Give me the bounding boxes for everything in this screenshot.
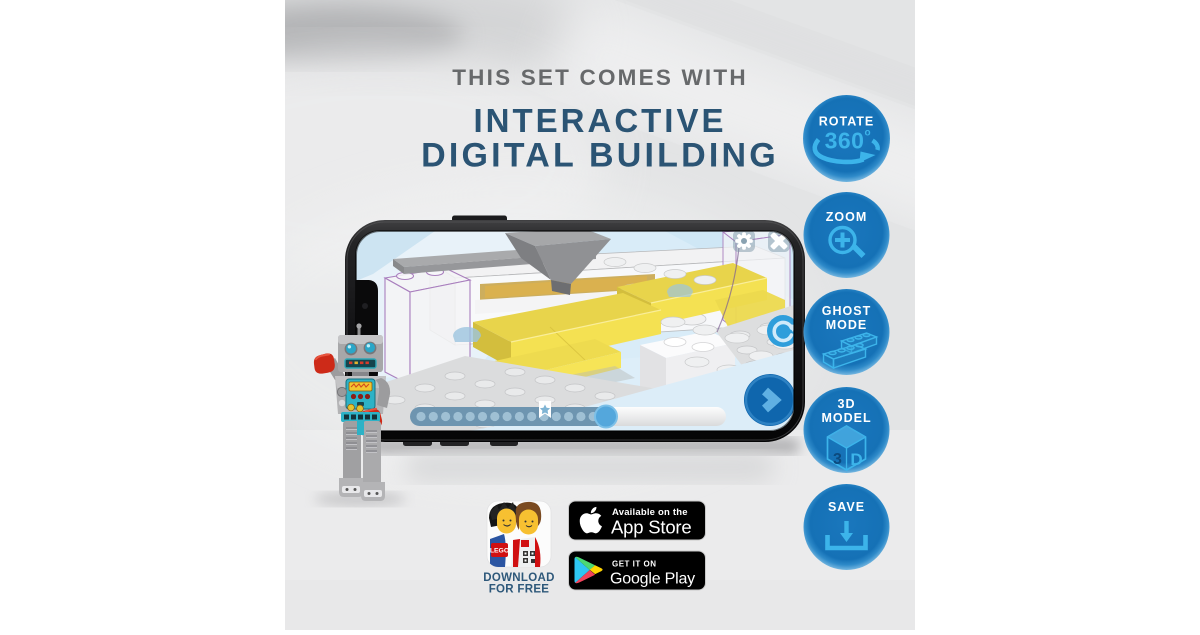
svg-text:DOWNLOAD: DOWNLOAD — [483, 572, 554, 584]
svg-text:o: o — [864, 128, 870, 139]
svg-text:ZOOM: ZOOM — [826, 210, 868, 224]
svg-text:MODE: MODE — [826, 318, 868, 332]
svg-text:MODEL: MODEL — [821, 411, 871, 425]
svg-text:FOR FREE: FOR FREE — [489, 584, 550, 596]
svg-text:Google Play: Google Play — [610, 571, 695, 588]
svg-text:App Store: App Store — [611, 517, 691, 538]
svg-text:D: D — [850, 450, 862, 469]
svg-text:SAVE: SAVE — [828, 500, 865, 514]
svg-text:360: 360 — [825, 128, 865, 154]
svg-text:DIGITAL BUILDING: DIGITAL BUILDING — [421, 137, 779, 175]
svg-text:3: 3 — [833, 451, 842, 468]
svg-text:LEGO: LEGO — [490, 548, 509, 555]
svg-text:3D: 3D — [838, 397, 856, 411]
svg-text:GET IT ON: GET IT ON — [612, 560, 657, 569]
svg-text:ROTATE: ROTATE — [819, 115, 875, 129]
svg-text:INTERACTIVE: INTERACTIVE — [473, 102, 726, 139]
svg-text:THIS SET COMES WITH: THIS SET COMES WITH — [452, 65, 748, 90]
svg-text:GHOST: GHOST — [822, 304, 871, 318]
